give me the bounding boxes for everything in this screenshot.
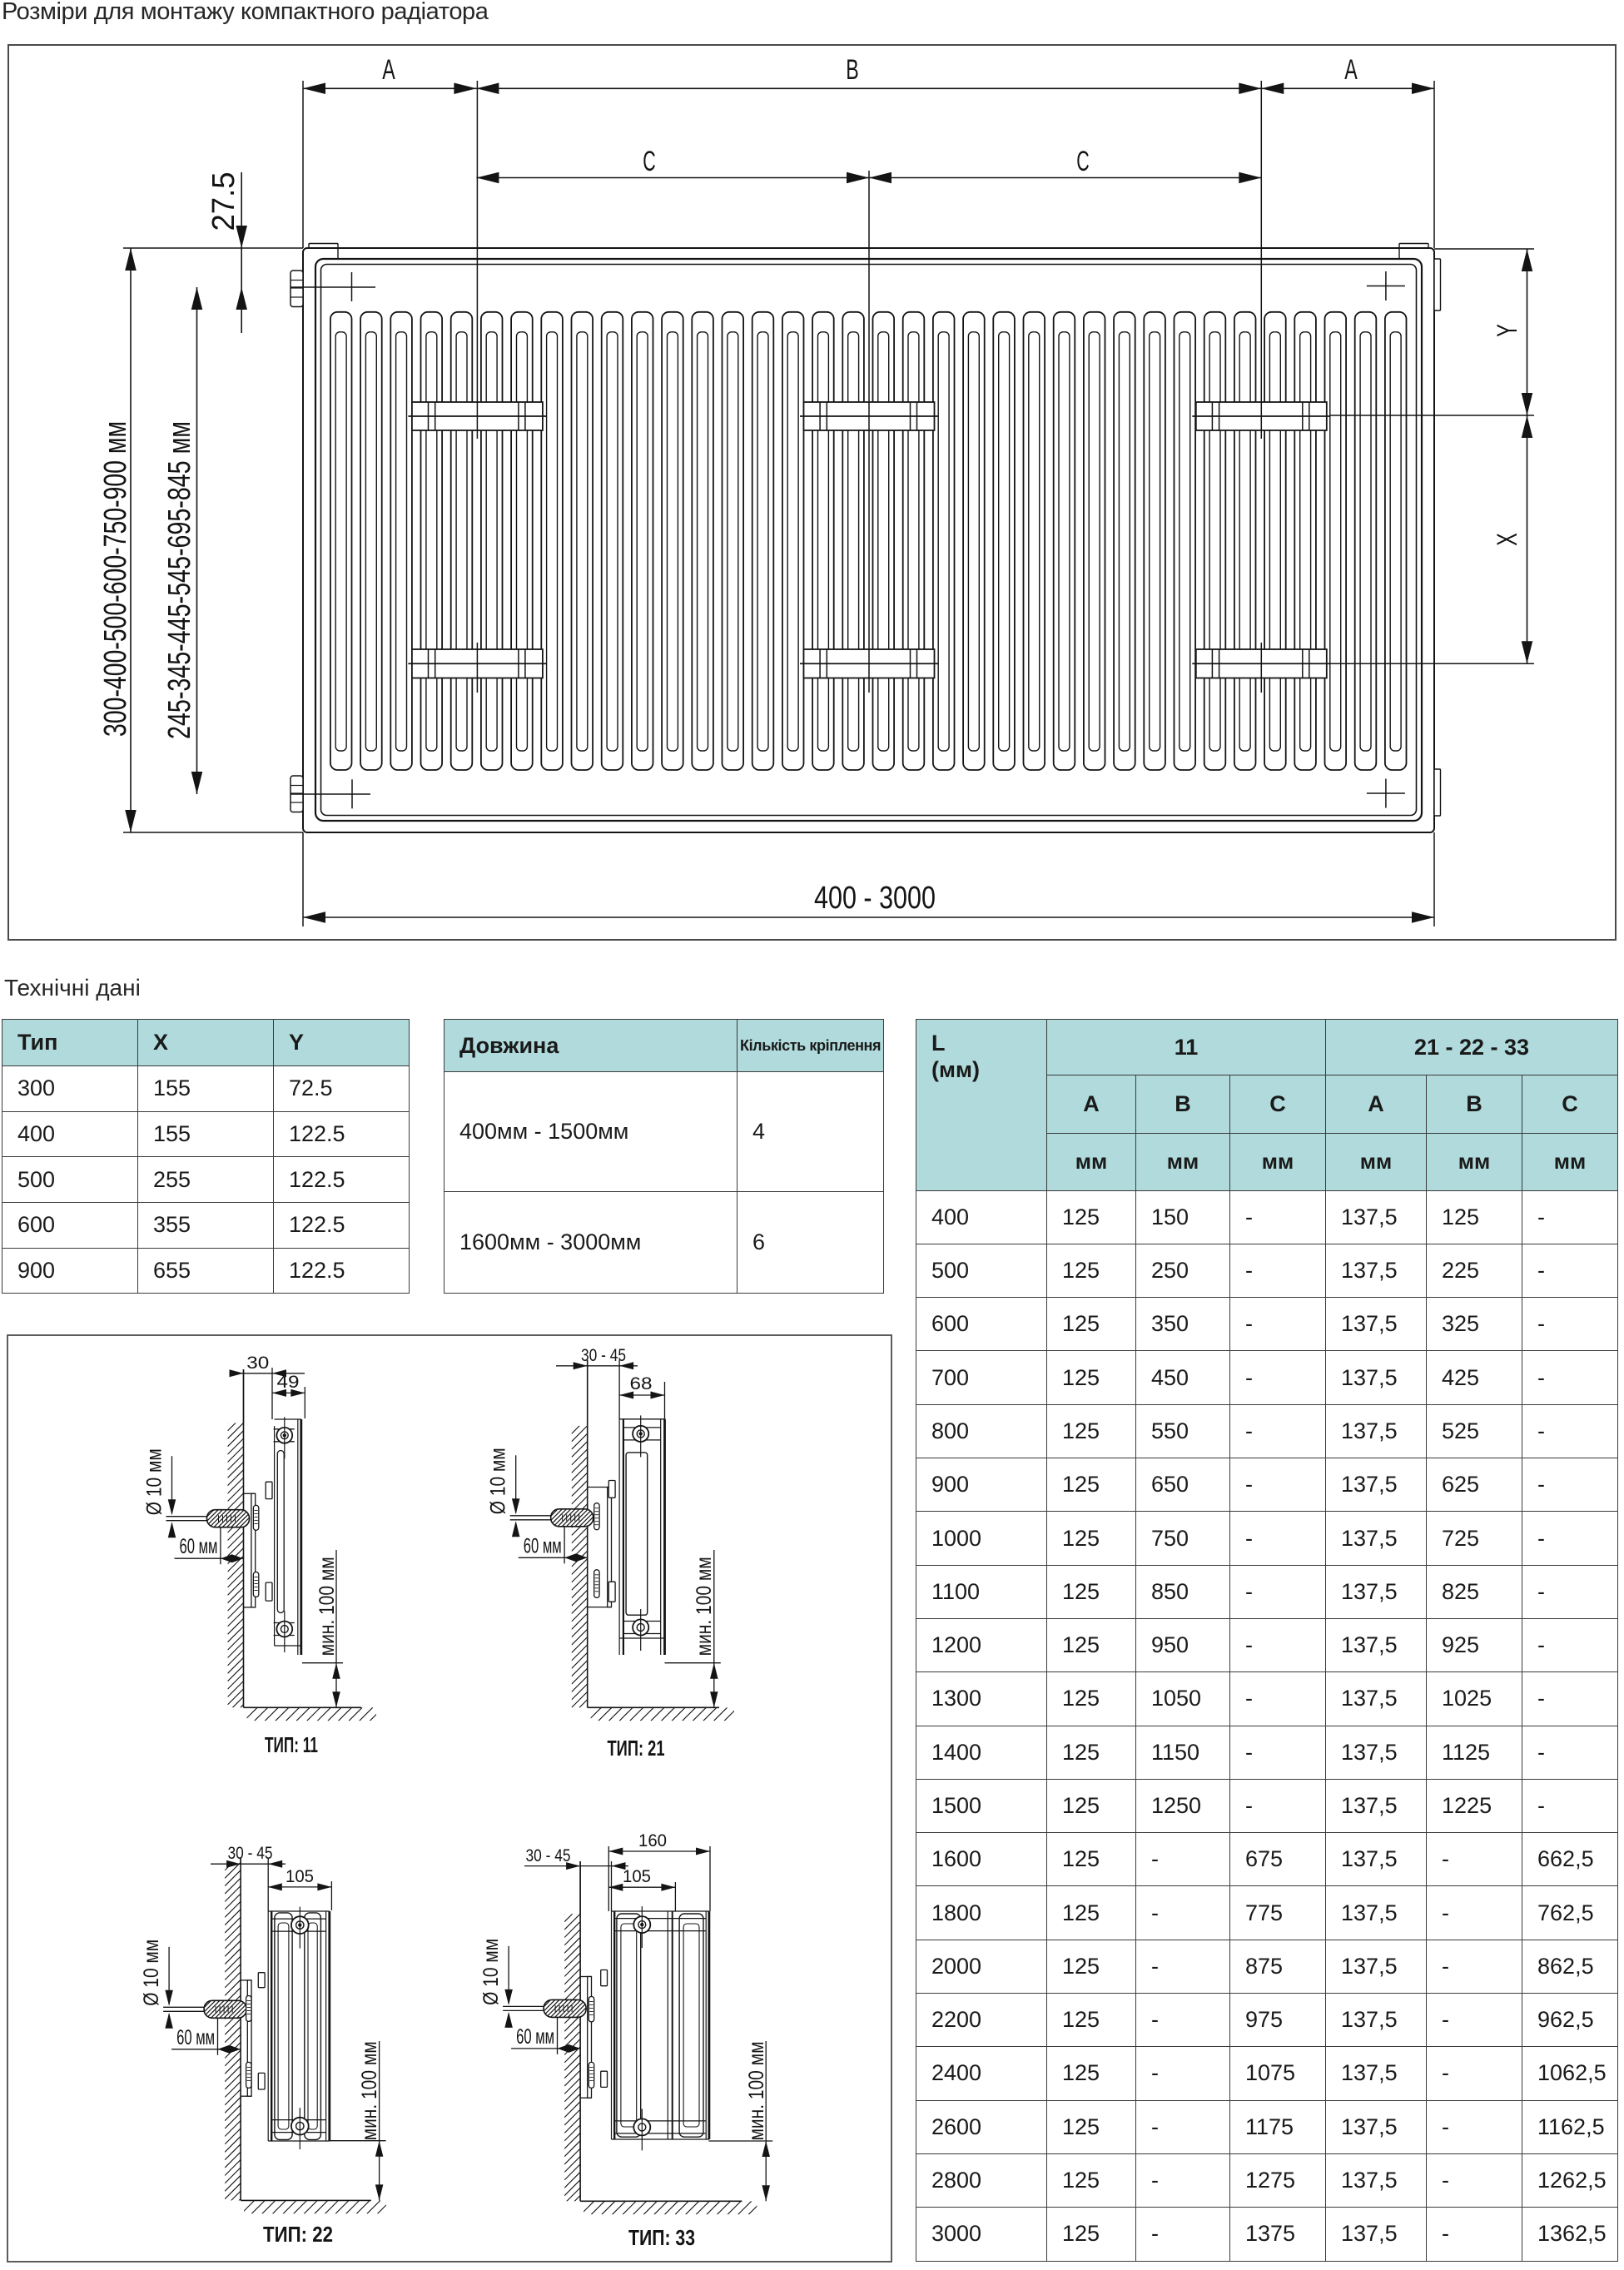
svg-text:68: 68 bbox=[630, 1374, 653, 1393]
svg-text:60 мм: 60 мм bbox=[180, 1535, 218, 1558]
svg-text:ТИП: 22: ТИП: 22 bbox=[263, 2222, 333, 2247]
svg-text:Ø 10 мм: Ø 10 мм bbox=[487, 1448, 510, 1514]
svg-text:30 - 45: 30 - 45 bbox=[581, 1346, 626, 1365]
svg-text:30 - 45: 30 - 45 bbox=[228, 1844, 273, 1863]
svg-text:ТИП: 21: ТИП: 21 bbox=[608, 1736, 665, 1761]
svg-text:30: 30 bbox=[246, 1354, 269, 1373]
svg-text:мин. 100 мм: мин. 100 мм bbox=[745, 2042, 768, 2141]
svg-text:60 мм: 60 мм bbox=[524, 1534, 562, 1557]
svg-text:49: 49 bbox=[277, 1373, 300, 1392]
svg-text:Ø 10 мм: Ø 10 мм bbox=[143, 1448, 166, 1515]
svg-text:30 - 45: 30 - 45 bbox=[526, 1846, 571, 1865]
svg-text:ТИП: 33: ТИП: 33 bbox=[628, 2225, 695, 2250]
svg-text:ТИП: 11: ТИП: 11 bbox=[265, 1732, 318, 1757]
svg-text:60 мм: 60 мм bbox=[176, 2026, 215, 2049]
svg-text:160: 160 bbox=[638, 1831, 667, 1850]
svg-text:Ø 10 мм: Ø 10 мм bbox=[140, 1940, 163, 2006]
svg-text:105: 105 bbox=[286, 1867, 314, 1886]
svg-text:мин. 100 мм: мин. 100 мм bbox=[693, 1557, 716, 1656]
svg-text:Ø 10 мм: Ø 10 мм bbox=[479, 1939, 503, 2005]
svg-text:мин. 100 мм: мин. 100 мм bbox=[358, 2041, 381, 2140]
svg-text:60 мм: 60 мм bbox=[516, 2025, 554, 2049]
svg-text:мин. 100 мм: мин. 100 мм bbox=[315, 1557, 339, 1656]
svg-text:105: 105 bbox=[623, 1867, 651, 1886]
